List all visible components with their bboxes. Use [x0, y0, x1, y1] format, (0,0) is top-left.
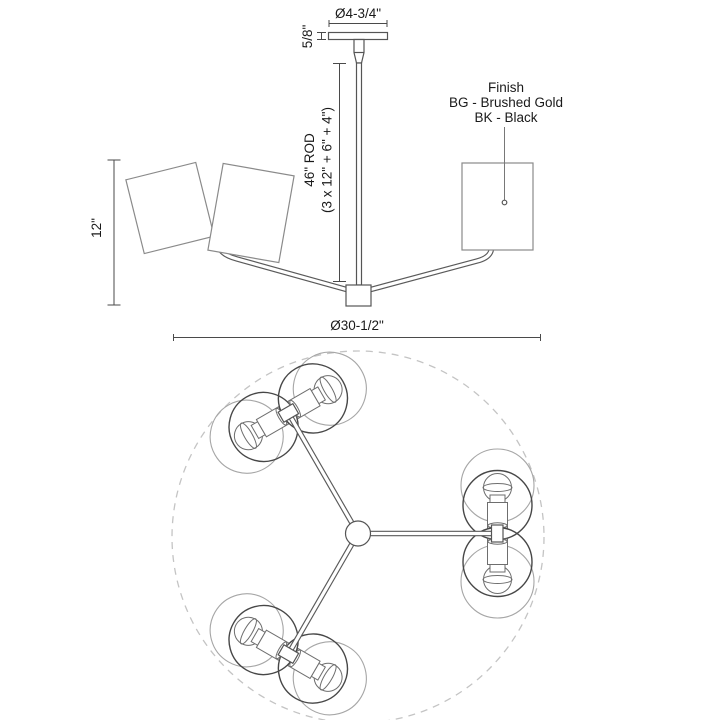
- rod-breakdown-label: (3 x 12" + 6" + 4"): [320, 107, 335, 213]
- canopy-stem: [354, 40, 364, 64]
- rod-length-label: 46" ROD: [302, 133, 317, 187]
- rod-dim-line: [333, 64, 346, 282]
- plan-view: [172, 339, 544, 720]
- fixture-diameter-label: Ø30-1/2": [330, 318, 384, 333]
- finish-option-brushed-gold: BG - Brushed Gold: [449, 95, 563, 110]
- finish-leader-dot: [502, 200, 507, 205]
- canopy-height-dim-line: [317, 33, 326, 40]
- spec-sheet: Ø4-3/4" 5/8" 46" ROD (3 x 12" + 6" + 4"): [0, 0, 720, 720]
- down-rod: [357, 63, 362, 285]
- right-arm-fill: [367, 248, 492, 291]
- height-dim-line: [108, 160, 121, 305]
- canopy-diameter-dim-line: [329, 20, 387, 27]
- fixture-height-dimension: 12": [89, 160, 121, 305]
- side-elevation-view: Ø4-3/4" 5/8" 46" ROD (3 x 12" + 6" + 4"): [89, 6, 563, 341]
- diameter-dim-line: [174, 334, 541, 341]
- plan-center-hub: [346, 521, 371, 546]
- rod-length-dimension: 46" ROD (3 x 12" + 6" + 4"): [302, 64, 346, 282]
- canopy-height-dimension: 5/8": [300, 25, 326, 49]
- lamp-pair-right: [369, 449, 534, 618]
- center-hub-block: [346, 285, 371, 306]
- fixture-height-label: 12": [89, 218, 104, 238]
- fixture-diameter-dimension: Ø30-1/2": [174, 318, 541, 341]
- shade-middle-tilted: [208, 163, 294, 262]
- shade-right: [462, 163, 533, 250]
- ceiling-canopy: [329, 33, 388, 40]
- canopy-diameter-dimension: Ø4-3/4": [329, 6, 387, 27]
- shade-left-tilted: [126, 162, 214, 253]
- finish-title: Finish: [488, 80, 524, 95]
- canopy-height-label: 5/8": [300, 25, 315, 49]
- drawing-canvas: Ø4-3/4" 5/8" 46" ROD (3 x 12" + 6" + 4"): [0, 0, 720, 720]
- finish-option-black: BK - Black: [474, 110, 537, 125]
- canopy-diameter-label: Ø4-3/4": [335, 6, 381, 21]
